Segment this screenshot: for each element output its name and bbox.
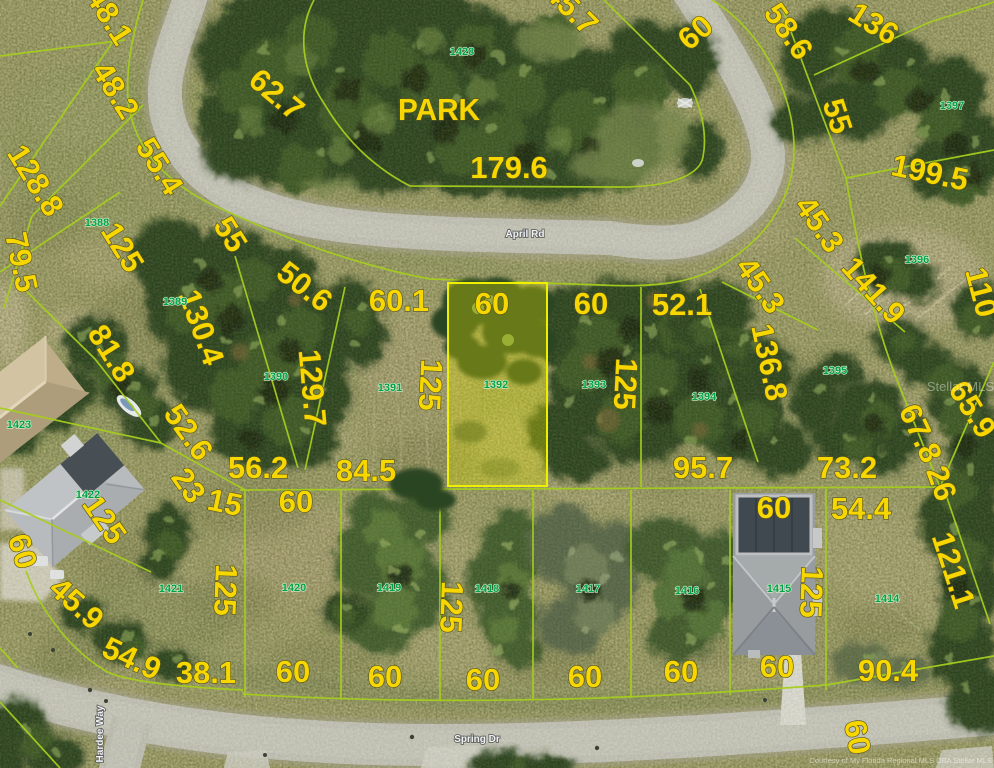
svg-text:1423: 1423 xyxy=(7,419,31,431)
svg-text:1417: 1417 xyxy=(576,583,600,595)
svg-text:1390: 1390 xyxy=(264,371,288,383)
svg-text:60: 60 xyxy=(466,662,500,697)
svg-text:1415: 1415 xyxy=(767,583,791,595)
svg-text:April Rd: April Rd xyxy=(506,229,545,240)
svg-text:1418: 1418 xyxy=(475,583,499,595)
svg-text:15: 15 xyxy=(204,482,245,523)
svg-text:1391: 1391 xyxy=(378,382,402,394)
svg-text:73.2: 73.2 xyxy=(817,450,877,485)
svg-text:84.5: 84.5 xyxy=(336,453,396,488)
svg-text:129.7: 129.7 xyxy=(292,348,334,428)
svg-text:1422: 1422 xyxy=(76,489,100,501)
svg-text:Stellar MLS: Stellar MLS xyxy=(927,379,994,394)
svg-text:38.1: 38.1 xyxy=(176,655,236,690)
svg-text:1395: 1395 xyxy=(823,365,847,377)
svg-text:90.4: 90.4 xyxy=(858,653,919,688)
svg-text:60: 60 xyxy=(276,654,310,689)
svg-text:1414: 1414 xyxy=(875,593,900,605)
svg-text:60: 60 xyxy=(664,654,698,689)
svg-text:1420: 1420 xyxy=(282,582,306,594)
svg-text:125: 125 xyxy=(412,358,450,411)
svg-text:1388: 1388 xyxy=(85,217,109,229)
svg-text:60: 60 xyxy=(760,649,794,684)
svg-text:60.1: 60.1 xyxy=(369,283,429,318)
svg-text:Courtesy of My Florida Regiona: Courtesy of My Florida Regional MLS DBA … xyxy=(809,756,992,765)
svg-text:60: 60 xyxy=(279,484,313,519)
svg-text:PARK: PARK xyxy=(398,92,481,127)
svg-text:60: 60 xyxy=(757,490,791,525)
svg-text:1394: 1394 xyxy=(692,391,717,403)
svg-text:60: 60 xyxy=(368,659,402,694)
svg-text:1392: 1392 xyxy=(484,379,508,391)
svg-text:Hardee Way: Hardee Way xyxy=(95,705,106,762)
svg-text:Spring Dr: Spring Dr xyxy=(454,734,500,745)
svg-text:125: 125 xyxy=(207,564,244,617)
svg-text:1396: 1396 xyxy=(905,254,929,266)
svg-text:1393: 1393 xyxy=(582,379,606,391)
svg-text:1419: 1419 xyxy=(377,582,401,594)
svg-text:1389: 1389 xyxy=(163,296,187,308)
svg-text:54.4: 54.4 xyxy=(831,491,892,526)
svg-text:60: 60 xyxy=(837,717,877,757)
svg-text:1397: 1397 xyxy=(940,100,964,112)
svg-text:1416: 1416 xyxy=(675,585,699,597)
svg-text:95.7: 95.7 xyxy=(673,450,733,485)
svg-text:1428: 1428 xyxy=(450,46,474,58)
svg-text:1421: 1421 xyxy=(159,583,183,595)
svg-text:52.1: 52.1 xyxy=(652,287,712,322)
svg-text:60: 60 xyxy=(475,286,509,321)
svg-text:60: 60 xyxy=(568,659,602,694)
svg-text:56.2: 56.2 xyxy=(228,450,288,485)
svg-text:60: 60 xyxy=(574,286,608,321)
svg-text:125: 125 xyxy=(793,566,830,619)
svg-text:125: 125 xyxy=(433,581,470,634)
svg-text:179.6: 179.6 xyxy=(470,150,548,185)
svg-text:125: 125 xyxy=(607,357,645,410)
